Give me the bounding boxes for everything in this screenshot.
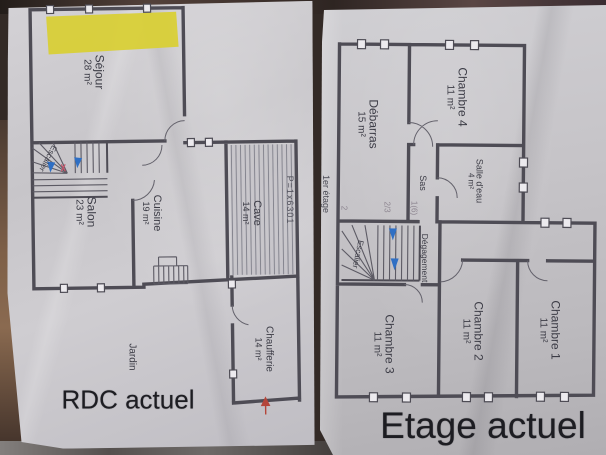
- room-label-sejour: Séjour 28 m²: [81, 55, 106, 90]
- photo-of-floorplans: Séjour 28 m² Salon 23 m² Cuisine 19 m² C…: [0, 0, 606, 455]
- room-name: Cave: [251, 200, 263, 226]
- room-label-chambre4: Chambre 4 11 m²: [444, 67, 469, 126]
- room-name: Chambre 3: [382, 314, 396, 373]
- room-area: 4 m²: [465, 159, 474, 203]
- room-name: Salle d'eau: [475, 159, 485, 203]
- room-label-cave: Cave 14 m²: [241, 200, 263, 226]
- annotation-text: P=1x6301: [285, 176, 295, 225]
- handwritten-mark: 2/3: [383, 201, 392, 212]
- floor-side-label: 1er étage: [321, 175, 331, 213]
- room-name: Chambre 4: [455, 67, 469, 126]
- room-name: Dégagement: [420, 234, 430, 283]
- handwritten-mark: 1(6): [410, 201, 419, 215]
- room-label-chambre3: Chambre 3 11 m²: [371, 314, 396, 373]
- room-label-debarras: Débarras 15 m²: [355, 99, 380, 148]
- room-area: 11 m²: [537, 300, 548, 359]
- room-area: 28 m²: [81, 55, 92, 90]
- room-area: 11 m²: [460, 301, 471, 360]
- room-label-sas: Sas: [418, 175, 428, 191]
- room-label-salon: Salon 23 m²: [73, 197, 98, 228]
- room-area: 19 m²: [141, 195, 151, 232]
- room-area: 11 m²: [371, 314, 382, 373]
- room-label-degagement: Dégagement: [419, 234, 429, 283]
- room-name: Séjour: [92, 55, 106, 90]
- room-name: Débarras: [366, 99, 380, 148]
- room-name: Salon: [84, 197, 98, 228]
- room-name: Chambre 2: [471, 301, 485, 360]
- room-label-jardin: Jardin: [126, 343, 137, 370]
- room-name: Chambre 1: [548, 300, 562, 359]
- room-area: 15 m²: [355, 99, 366, 148]
- room-area: 11 m²: [444, 67, 455, 126]
- room-name: Jardin: [127, 343, 138, 370]
- side-label-text: 1er étage: [321, 175, 331, 213]
- plan-annotation: P=1x6301: [285, 176, 295, 225]
- room-label-cuisine: Cuisine 19 m²: [141, 195, 163, 232]
- rdc-title: RDC actuel: [62, 385, 195, 416]
- room-label-chambre2: Chambre 2 11 m²: [460, 301, 485, 360]
- room-name: Chaufferie: [264, 326, 275, 372]
- room-area: 14 m²: [241, 200, 251, 226]
- room-label-chambre1: Chambre 1 11 m²: [537, 300, 562, 359]
- handwritten-mark: 2: [340, 206, 349, 210]
- room-name: Sas: [418, 175, 428, 191]
- room-area: 23 m²: [73, 197, 84, 228]
- room-label-chaufferie: Chaufferie 14 m²: [253, 326, 274, 372]
- room-area: 14 m²: [253, 326, 263, 372]
- etage-title: Etage actuel: [380, 405, 586, 447]
- room-name: Cuisine: [151, 195, 163, 232]
- room-label-salle-deau: Salle d'eau 4 m²: [465, 159, 484, 203]
